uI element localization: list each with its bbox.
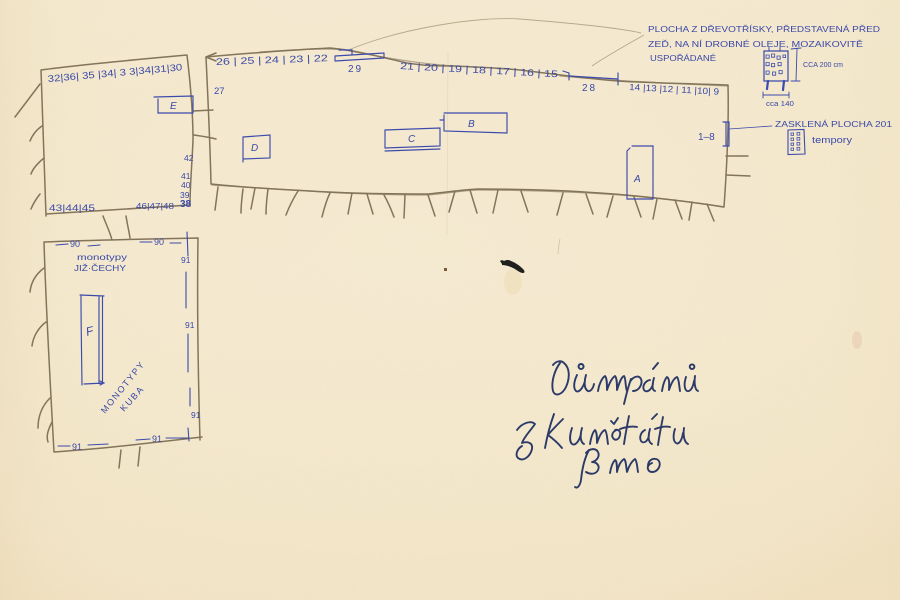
svg-text:29: 29 [348,64,363,75]
svg-text:monotypy: monotypy [77,252,128,262]
svg-text:PLOCHA Z DŘEVOTŘÍSKY, PŘEDSTAV: PLOCHA Z DŘEVOTŘÍSKY, PŘEDSTAVENÁ PŘED [648,24,880,34]
svg-text:43|44|45: 43|44|45 [49,203,95,213]
svg-text:JIŽ·ČECHY: JIŽ·ČECHY [74,264,127,273]
svg-text:CCA 200 cm: CCA 200 cm [803,62,843,69]
svg-text:46|47|48: 46|47|48 [136,201,174,211]
svg-text:ZASKLENÁ PLOCHA 201: ZASKLENÁ PLOCHA 201 [775,119,892,129]
svg-text:A: A [633,174,641,185]
svg-text:B: B [468,119,475,130]
svg-text:42: 42 [184,153,194,163]
svg-text:38: 38 [180,199,192,210]
svg-text:cca 140: cca 140 [766,101,794,108]
svg-text:91: 91 [72,442,82,452]
svg-text:28: 28 [582,83,597,94]
svg-text:C: C [408,134,416,145]
svg-text:tempory: tempory [812,135,853,145]
svg-text:91: 91 [181,255,191,265]
svg-text:1–8: 1–8 [698,132,715,143]
svg-text:USPOŘÁDANÉ: USPOŘÁDANÉ [650,53,716,63]
svg-text:27: 27 [214,86,225,97]
svg-text:ZEĎ, NA NÍ DROBNÉ OLEJE, MOZAI: ZEĎ, NA NÍ DROBNÉ OLEJE, MOZAIKOVITĚ [648,39,863,49]
svg-text:90: 90 [70,239,80,249]
svg-text:91: 91 [185,320,195,330]
svg-text:E: E [170,101,177,112]
svg-text:90: 90 [154,237,164,247]
svg-text:91: 91 [152,434,162,444]
svg-text:D: D [251,143,258,154]
svg-text:40: 40 [181,180,191,190]
svg-text:91: 91 [191,410,201,420]
